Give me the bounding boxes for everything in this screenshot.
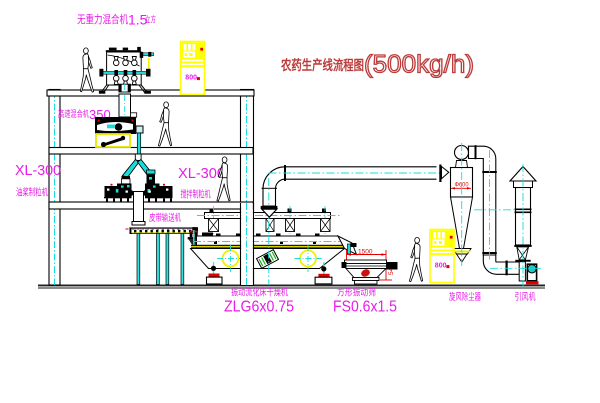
svg-text:ZLG6x0.75: ZLG6x0.75 [224, 299, 294, 316]
svg-text:高速混合机: 高速混合机 [58, 108, 89, 119]
svg-text:1500: 1500 [358, 249, 373, 256]
svg-text:搅拌制粒机: 搅拌制粒机 [181, 189, 211, 201]
svg-text:引风机: 引风机 [515, 291, 536, 303]
svg-text:(500kg/h): (500kg/h) [364, 51, 474, 79]
svg-text:方形振动筛: 方形振动筛 [337, 287, 376, 299]
svg-text:无重力混合机: 无重力混合机 [77, 12, 128, 26]
svg-text:XL-300: XL-300 [15, 162, 61, 179]
svg-text:XL-300: XL-300 [178, 165, 225, 182]
svg-text:FS0.6x1.5: FS0.6x1.5 [333, 299, 397, 316]
svg-text:皮带输送机: 皮带输送机 [149, 212, 181, 224]
svg-text:立方: 立方 [145, 15, 156, 25]
svg-text:振动流化床干燥机: 振动流化床干燥机 [231, 287, 288, 299]
svg-text:农药生产线流程图: 农药生产线流程图 [280, 57, 364, 73]
svg-text:油桨制粒机: 油桨制粒机 [16, 187, 48, 199]
svg-text:旋风除尘器: 旋风除尘器 [449, 291, 481, 303]
